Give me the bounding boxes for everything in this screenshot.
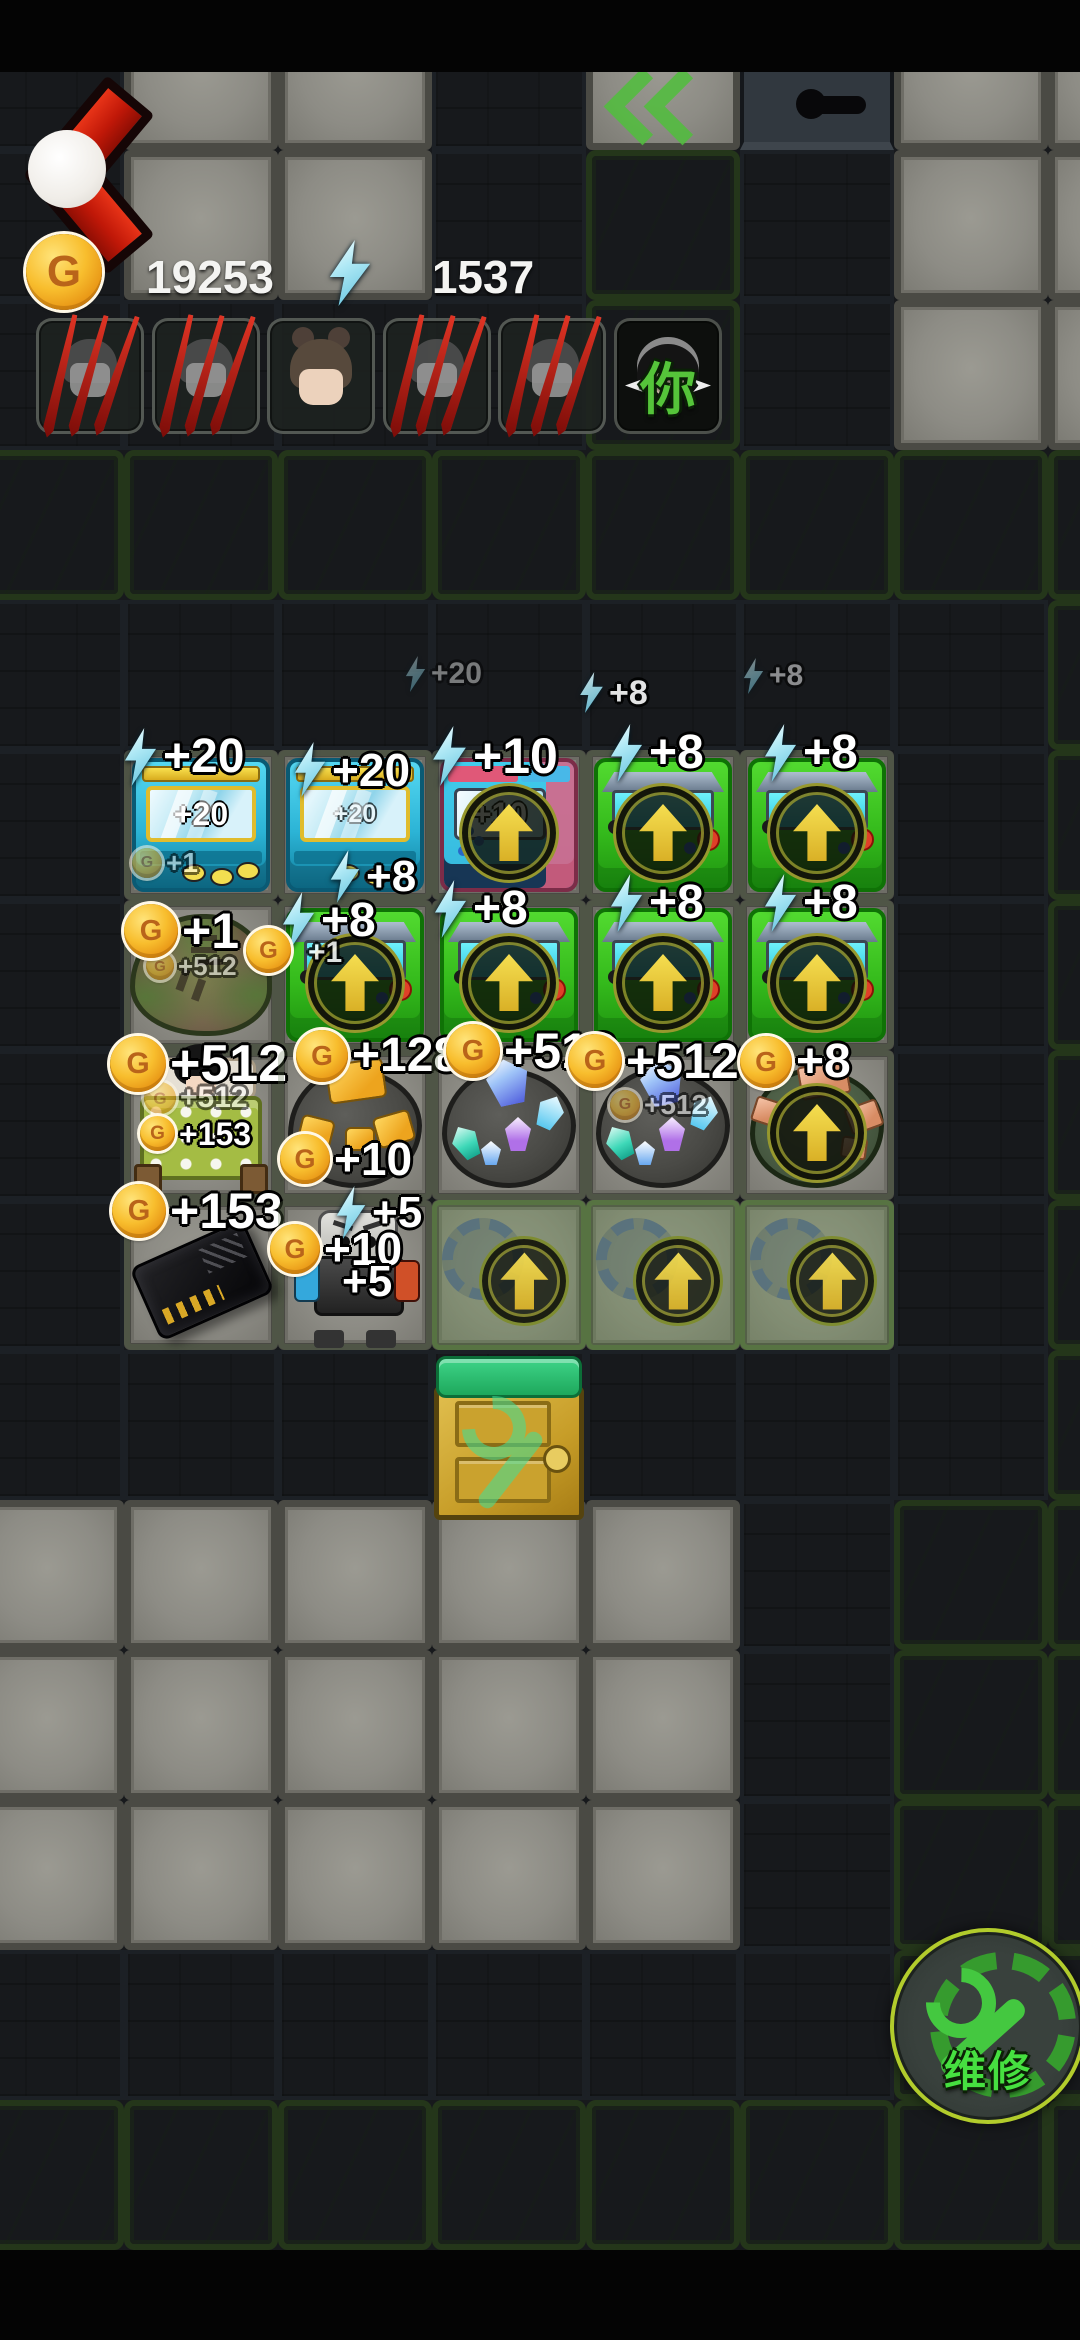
floor-tile-moss (740, 2100, 894, 2250)
grid-cell-r4c4[interactable] (586, 1200, 740, 1350)
floor-tile-dark (0, 900, 124, 1050)
floor-tile-stone (894, 300, 1048, 450)
floor-tile-moss (1048, 2100, 1080, 2250)
floor-tile-moss (1048, 750, 1080, 900)
floor-tile-dark (894, 600, 1048, 750)
grid-cell-r3c5[interactable]: G+8 (740, 1050, 894, 1200)
floor-tile-dark (740, 1650, 894, 1800)
party-slot-5[interactable] (498, 318, 606, 434)
grid-cell-r2c5[interactable]: +8 (740, 900, 894, 1050)
claw-marks-icon (501, 321, 603, 431)
grid-cell-r4c5[interactable] (740, 1200, 894, 1350)
floor-tile-stone (124, 1650, 278, 1800)
upgrade-arrow-icon (613, 933, 713, 1033)
claw-marks-icon (386, 321, 488, 431)
back-button-ball (28, 130, 106, 208)
upgrade-arrow-icon (613, 783, 713, 883)
claw-marks-icon (39, 321, 141, 431)
floor-tile-moss (278, 450, 432, 600)
party-slot-1[interactable] (36, 318, 144, 434)
grid-cell-r4c1[interactable]: G+153 (124, 1200, 278, 1350)
floor-tile-dark (0, 1050, 124, 1200)
grid-cell-r3c2[interactable]: G+128G+10 (278, 1050, 432, 1200)
floor-tile-dark (0, 750, 124, 900)
avatar-girl-buns (270, 321, 372, 431)
floor-tile-moss (0, 2100, 124, 2250)
grid-cell-r3c3[interactable]: G+512 (432, 1050, 586, 1200)
void-tile (432, 2250, 586, 2340)
floor-tile-moss (1048, 1350, 1080, 1500)
floor-tile-dark (894, 750, 1048, 900)
status-bar (0, 0, 1080, 72)
floor-tile-dark (740, 150, 894, 300)
grid-cell-r1c5[interactable]: +8 (740, 750, 894, 900)
floor-tile-dark (740, 1350, 894, 1500)
floor-tile-moss (1048, 1800, 1080, 1950)
upgrade-arrow-icon (787, 1236, 877, 1326)
floor-tile-dark (740, 1500, 894, 1650)
floor-tile-moss (1048, 600, 1080, 750)
game-screen: G 19253 1537 你 +20G+1+20+20+20+8+10+10+8… (0, 0, 1080, 2340)
door[interactable] (434, 1356, 584, 1520)
upgrade-arrow-icon (479, 1236, 569, 1326)
floor-tile-dark (124, 1350, 278, 1500)
floor-tile-dark (0, 600, 124, 750)
floor-tile-dark (586, 1350, 740, 1500)
item-robot (278, 1200, 432, 1350)
floor-tile-moss (894, 1500, 1048, 1650)
floor-tile-stone (1048, 300, 1080, 450)
upgrade-arrow-icon (767, 933, 867, 1033)
floor-tile-stone (0, 1650, 124, 1800)
floor-tile-stone (278, 1500, 432, 1650)
floor-tile-dark (740, 1800, 894, 1950)
upgrade-arrow-icon (767, 1083, 867, 1183)
void-tile (0, 2250, 124, 2340)
repair-button-label: 维修 (894, 2038, 1080, 2099)
floor-tile-dark (278, 1950, 432, 2100)
floor-tile-stone (586, 1800, 740, 1950)
upgrade-arrow-icon (305, 933, 405, 1033)
grid-cell-r4c3[interactable] (432, 1200, 586, 1350)
floor-tile-stone (432, 1800, 586, 1950)
floor-tile-stone (894, 150, 1048, 300)
item-arcade-cyan: +20 (124, 750, 278, 900)
floor-tile-moss (1048, 1200, 1080, 1350)
floor-tile-dark (432, 600, 586, 750)
floor-tile-dark (740, 600, 894, 750)
claw-marks-icon (155, 321, 257, 431)
floor-tile-dark (278, 1350, 432, 1500)
item-stump (124, 900, 278, 1050)
floor-tile-stone (432, 1650, 586, 1800)
grid-cell-r3c4[interactable]: G+512G+512 (586, 1050, 740, 1200)
item-gold-rock (278, 1050, 432, 1200)
floor-tile-moss (1048, 1500, 1080, 1650)
floor-tile-stone (124, 1800, 278, 1950)
floor-tile-stone (278, 1800, 432, 1950)
floor-tile-moss (124, 450, 278, 600)
floor-tile-moss (1048, 1050, 1080, 1200)
you-marker: 你 (617, 345, 719, 426)
wrench-overlay-icon (450, 1398, 562, 1514)
floor-tile-moss (1048, 900, 1080, 1050)
floor-tile-dark (740, 300, 894, 450)
floor-tile-moss (0, 450, 124, 600)
door-progress-bar (436, 1356, 582, 1398)
floor-tile-dark (894, 900, 1048, 1050)
energy-icon (326, 240, 374, 306)
floor-tile-dark (740, 1950, 894, 2100)
floor-tile-stone (124, 1500, 278, 1650)
floor-tile-moss (1048, 450, 1080, 600)
party-slot-3[interactable] (267, 318, 375, 434)
floor-tile-moss (1048, 1650, 1080, 1800)
floor-tile-dark (586, 1950, 740, 2100)
item-card (124, 1200, 278, 1350)
grid-cell-r3c1[interactable]: G+512G+153G+512 (124, 1050, 278, 1200)
grid-cell-r2c1[interactable]: G+512G+1 (124, 900, 278, 1050)
floor-tile-dark (0, 1200, 124, 1350)
grid-cell-r1c4[interactable]: +8 (586, 750, 740, 900)
grid-cell-r2c4[interactable]: +8 (586, 900, 740, 1050)
grid-cell-r4c2[interactable]: +5G+10+5 (278, 1200, 432, 1350)
void-tile (586, 2250, 740, 2340)
floor-tile-stone (0, 1500, 124, 1650)
upgrade-arrow-icon (459, 933, 559, 1033)
floor-tile-stone (586, 1500, 740, 1650)
floor-tile-moss (894, 450, 1048, 600)
party-slot-6[interactable]: 你 (614, 318, 722, 434)
void-tile (124, 2250, 278, 2340)
floor-tile-stone (432, 1500, 586, 1650)
void-tile (740, 2250, 894, 2340)
floor-tile-moss (432, 450, 586, 600)
gold-coin-icon: G (26, 234, 102, 310)
void-tile (278, 2250, 432, 2340)
floor-tile-moss (124, 2100, 278, 2250)
upgrade-arrow-icon (633, 1236, 723, 1326)
floor-tile-dark (894, 1050, 1048, 1200)
grid-cell-r2c3[interactable]: +8 (432, 900, 586, 1050)
floor-tile-moss (432, 2100, 586, 2250)
repair-button[interactable]: 维修 (890, 1928, 1080, 2124)
upgrade-arrow-icon (767, 783, 867, 883)
gold-amount: 19253 (140, 250, 280, 304)
floor-tile-dark (0, 1350, 124, 1500)
floor-tile-dark (124, 600, 278, 750)
floor-tile-dark (586, 600, 740, 750)
floor-tile-stone (278, 1650, 432, 1800)
energy-amount: 1537 (408, 250, 558, 304)
floor-tile-moss (894, 1650, 1048, 1800)
void-tile (1048, 2250, 1080, 2340)
item-bed (124, 1050, 278, 1200)
item-crystal-rock (432, 1050, 586, 1200)
floor-tile-moss (894, 1800, 1048, 1950)
floor-tile-dark (124, 1950, 278, 2100)
floor-tile-moss (740, 450, 894, 600)
party-slot-2[interactable] (152, 318, 260, 434)
floor-tile-moss (586, 150, 740, 300)
floor-tile-dark (894, 1200, 1048, 1350)
floor-tile-dark (278, 600, 432, 750)
floor-tile-dark (432, 1950, 586, 2100)
floor-tile-moss (278, 2100, 432, 2250)
floor-tile-dark (0, 1950, 124, 2100)
grid-cell-r1c2[interactable]: +20+20+8 (278, 750, 432, 900)
grid-cell-r1c1[interactable]: +20G+1+20 (124, 750, 278, 900)
void-tile (894, 2250, 1048, 2340)
grid-cell-r2c2[interactable]: +8 (278, 900, 432, 1050)
item-arcade-cyan: +20 (278, 750, 432, 900)
floor-tile-stone (1048, 150, 1080, 300)
party-slot-4[interactable] (383, 318, 491, 434)
floor-tile-moss (586, 2100, 740, 2250)
floor-tile-moss (586, 450, 740, 600)
back-button[interactable] (14, 88, 148, 240)
upgrade-arrow-icon (459, 783, 559, 883)
grid-cell-r1c3[interactable]: +10+10 (432, 750, 586, 900)
floor-tile-stone (0, 1800, 124, 1950)
floor-tile-stone (586, 1650, 740, 1800)
item-crystal-rock (586, 1050, 740, 1200)
floor-tile-dark (894, 1350, 1048, 1500)
